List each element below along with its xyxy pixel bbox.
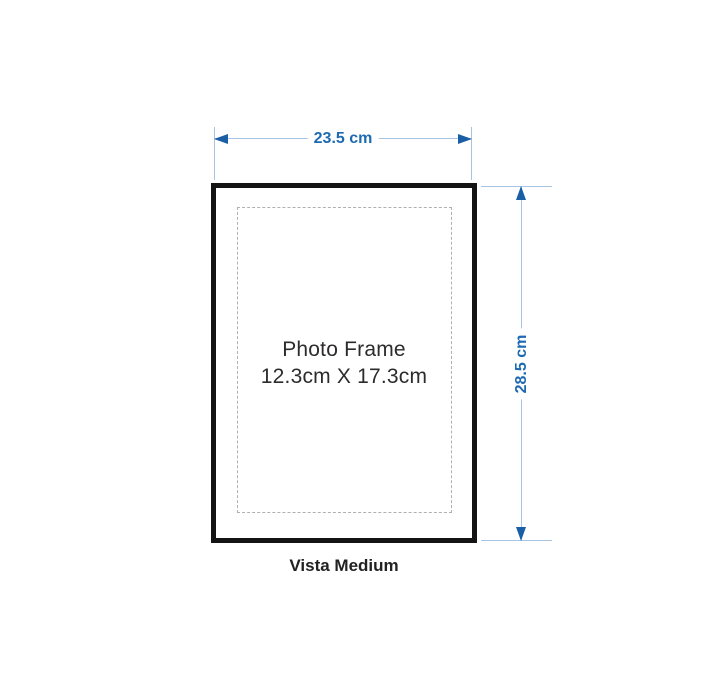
width-dimension-label: 23.5 cm: [308, 130, 379, 148]
width-arrow-left-icon: [214, 134, 228, 144]
height-arrow-down-icon: [516, 527, 526, 541]
frame-size-label: Photo Frame 12.3cm X 17.3cm: [211, 336, 477, 390]
frame-name-caption: Vista Medium: [211, 556, 477, 576]
height-dimension-label: 28.5 cm: [513, 329, 531, 400]
photo-frame-dimension-diagram: 23.5 cm 28.5 cm Photo Frame 12.3cm X 17.…: [0, 0, 720, 694]
frame-label-size: 12.3cm X 17.3cm: [211, 363, 477, 390]
width-arrow-right-icon: [458, 134, 472, 144]
height-arrow-up-icon: [516, 186, 526, 200]
frame-label-title: Photo Frame: [211, 336, 477, 363]
